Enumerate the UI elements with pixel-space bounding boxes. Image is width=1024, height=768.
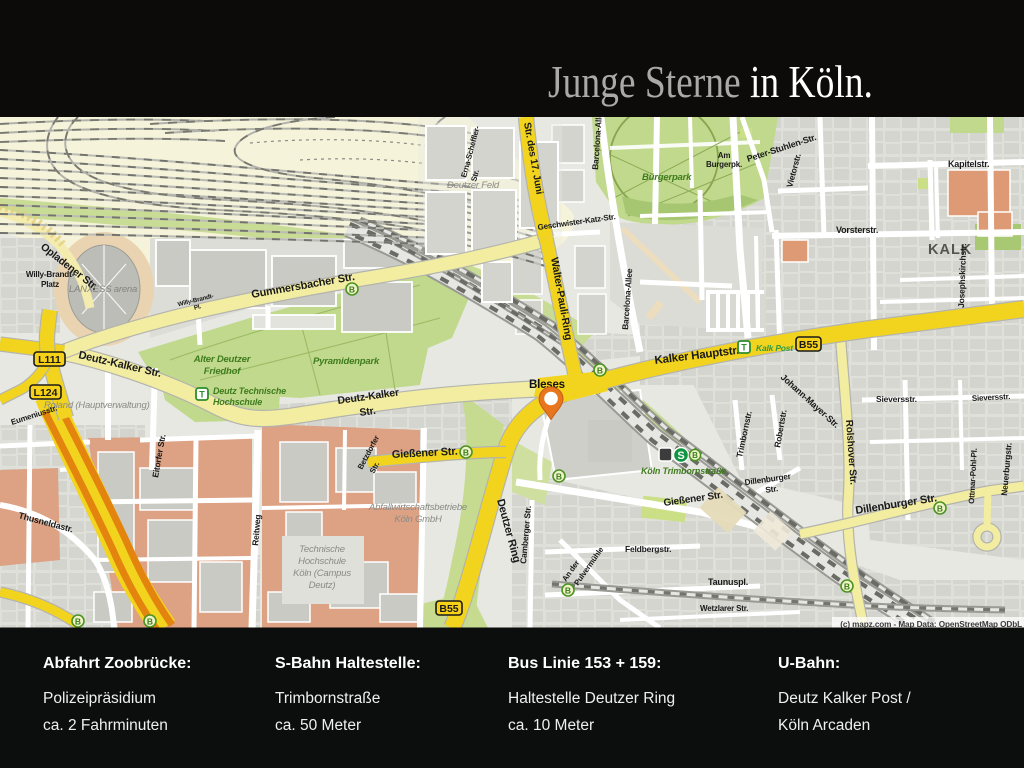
svg-text:B: B <box>844 581 850 591</box>
svg-text:Platz: Platz <box>41 280 59 289</box>
svg-text:Friedhof: Friedhof <box>204 366 241 377</box>
svg-text:Am: Am <box>718 151 731 160</box>
svg-text:L111: L111 <box>38 354 61 366</box>
svg-text:Abfallwirtschaftsbetriebe: Abfallwirtschaftsbetriebe <box>368 502 467 513</box>
svg-text:L124: L124 <box>34 387 58 399</box>
svg-text:Roland (Hauptverwaltung): Roland (Hauptverwaltung) <box>44 400 150 411</box>
svg-text:Pyramidenpark: Pyramidenpark <box>313 356 380 367</box>
svg-text:Deutz Technische: Deutz Technische <box>213 386 286 396</box>
svg-text:B: B <box>692 451 698 460</box>
svg-text:Hochschule: Hochschule <box>213 397 262 407</box>
svg-text:Kapitelstr.: Kapitelstr. <box>948 159 989 169</box>
svg-text:Vorsterstr.: Vorsterstr. <box>836 225 878 235</box>
svg-text:T: T <box>199 390 205 400</box>
svg-text:Bürgerpark: Bürgerpark <box>642 172 692 183</box>
svg-text:B: B <box>75 616 81 626</box>
svg-text:B55: B55 <box>439 603 458 615</box>
svg-text:Köln GmbH: Köln GmbH <box>394 514 442 525</box>
svg-text:Technische: Technische <box>299 544 345 555</box>
svg-text:Köln (Campus: Köln (Campus <box>293 568 351 579</box>
svg-text:Str.: Str. <box>359 405 377 419</box>
svg-text:B: B <box>556 471 562 481</box>
svg-text:Feldbergstr.: Feldbergstr. <box>625 544 671 554</box>
svg-text:Köln Trimbornstraße: Köln Trimbornstraße <box>641 466 726 476</box>
svg-text:Deutz): Deutz) <box>309 580 336 591</box>
svg-text:Taunuspl.: Taunuspl. <box>708 577 748 587</box>
svg-text:LANXESS arena: LANXESS arena <box>69 284 137 295</box>
svg-text:Hochschule: Hochschule <box>298 556 346 567</box>
svg-text:Kalk Post: Kalk Post <box>756 343 794 353</box>
svg-text:T: T <box>741 343 747 353</box>
svg-text:Alter Deutzer: Alter Deutzer <box>193 354 252 365</box>
svg-text:Sieversstr.: Sieversstr. <box>876 394 917 404</box>
svg-text:B: B <box>349 284 355 294</box>
svg-text:B: B <box>597 365 603 375</box>
svg-text:B: B <box>147 616 153 626</box>
svg-text:Willy-Brandt-: Willy-Brandt- <box>26 270 75 279</box>
svg-text:Str.: Str. <box>765 483 779 495</box>
svg-text:B: B <box>937 503 943 513</box>
svg-text:Burgerpk.: Burgerpk. <box>706 160 742 169</box>
svg-text:S: S <box>677 450 684 462</box>
svg-text:B55: B55 <box>799 339 818 351</box>
svg-text:Wetzlarer Str.: Wetzlarer Str. <box>700 604 748 613</box>
svg-text:B: B <box>565 585 571 595</box>
svg-text:B: B <box>463 447 469 457</box>
